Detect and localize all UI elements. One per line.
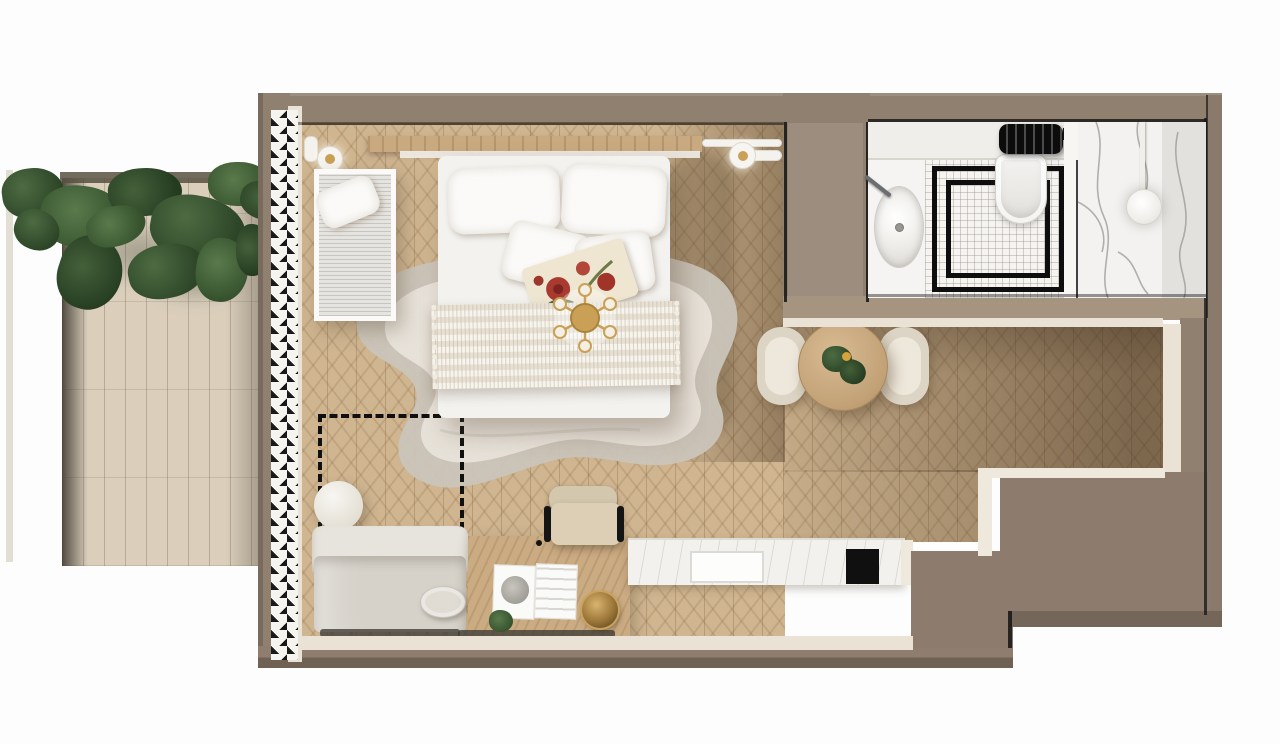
wall-sconce-right xyxy=(729,142,756,169)
desk-plant xyxy=(489,610,513,632)
sofa-bolster-cushion xyxy=(420,586,466,618)
desk-chair-arm-left xyxy=(544,506,551,542)
wall-below-bathroom xyxy=(783,296,1206,320)
wall-accent-line xyxy=(784,122,787,302)
towel-radiator xyxy=(999,124,1063,154)
rod-end xyxy=(304,136,318,162)
drapes-left-glazing xyxy=(271,110,298,660)
wall-block-bottom-right xyxy=(1000,472,1210,613)
wall-block-kitchen-side xyxy=(911,551,1013,648)
top-wall-inner-shadow xyxy=(298,122,785,125)
trim-right-column xyxy=(1163,324,1181,472)
floor-plan-render xyxy=(0,0,1280,744)
bathroom-bottom-line xyxy=(868,294,1206,297)
headboard-shelf xyxy=(368,136,702,152)
desk-chair-arm-right xyxy=(617,506,624,542)
rain-shower-head xyxy=(1126,189,1162,225)
desk-chair-seat xyxy=(551,503,621,545)
trim-below-bathroom xyxy=(783,318,1163,327)
open-magazine-right-page xyxy=(534,563,578,619)
trim-notch-left xyxy=(978,468,992,556)
shower-arm xyxy=(1140,122,1145,192)
bed-pillow-large-left xyxy=(447,165,561,235)
table-plant-flower xyxy=(842,352,851,361)
terrace-outer-rail xyxy=(6,170,13,562)
kitchen-sink xyxy=(690,551,764,583)
round-side-table xyxy=(314,481,363,530)
brass-bowl xyxy=(582,592,618,628)
studio-floor-kitchen xyxy=(783,470,980,542)
bed-pillow-large-right xyxy=(560,162,668,237)
wall-hung-toilet xyxy=(995,154,1047,224)
wall-bottom-right-edge xyxy=(1010,611,1222,627)
wall-bath-divider-panel xyxy=(788,123,863,298)
trim-notch-top xyxy=(978,468,1165,478)
desk-chair-caster xyxy=(536,540,542,546)
chandelier xyxy=(545,280,625,360)
basin-drain xyxy=(895,223,904,232)
cooktop xyxy=(846,549,879,584)
step-line xyxy=(1008,611,1012,648)
trim-bottom xyxy=(300,636,913,650)
